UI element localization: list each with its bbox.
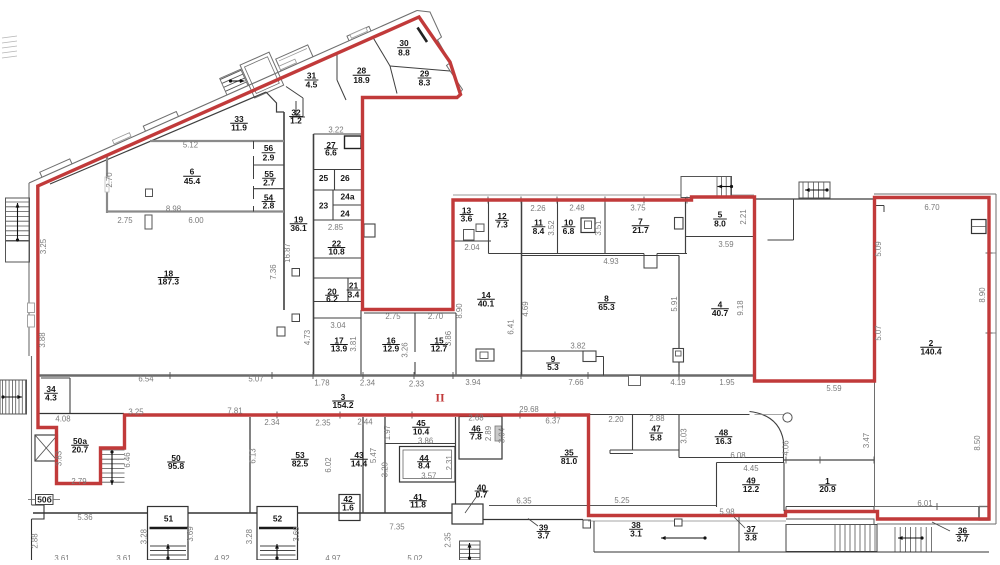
svg-text:8.8: 8.8: [398, 48, 410, 58]
svg-text:7.8: 7.8: [470, 432, 482, 442]
svg-text:52: 52: [273, 514, 283, 524]
svg-text:23: 23: [319, 201, 329, 211]
svg-text:6.35: 6.35: [516, 496, 532, 505]
svg-text:3.04: 3.04: [330, 321, 346, 330]
svg-text:5.25: 5.25: [614, 496, 630, 505]
svg-text:2.75: 2.75: [385, 312, 401, 321]
svg-text:7.66: 7.66: [568, 378, 583, 387]
svg-text:12.9: 12.9: [383, 344, 400, 354]
svg-text:2.48: 2.48: [569, 203, 584, 212]
svg-text:5.98: 5.98: [719, 507, 734, 516]
svg-text:3.6: 3.6: [461, 214, 473, 224]
svg-text:1.78: 1.78: [314, 378, 329, 387]
svg-text:8.98: 8.98: [166, 204, 181, 213]
svg-text:2.34: 2.34: [360, 378, 376, 387]
svg-text:7.81: 7.81: [227, 406, 242, 415]
svg-text:6.00: 6.00: [188, 216, 204, 225]
svg-text:11.8: 11.8: [410, 500, 426, 510]
svg-text:4.5: 4.5: [306, 80, 318, 90]
svg-text:3.28: 3.28: [139, 529, 148, 544]
svg-text:2.70: 2.70: [105, 172, 114, 188]
svg-text:6.70: 6.70: [924, 203, 940, 212]
svg-text:2.88: 2.88: [31, 533, 40, 548]
svg-text:65.3: 65.3: [598, 302, 615, 312]
svg-text:2.85: 2.85: [328, 223, 344, 232]
svg-text:14.4: 14.4: [351, 459, 368, 469]
svg-text:8.4: 8.4: [418, 461, 430, 471]
svg-text:6.02: 6.02: [324, 457, 333, 472]
svg-text:16.3: 16.3: [715, 436, 732, 446]
svg-text:29.68: 29.68: [519, 405, 539, 414]
svg-text:5.07: 5.07: [874, 325, 883, 340]
svg-text:3.86: 3.86: [444, 331, 453, 346]
svg-text:2.31: 2.31: [445, 455, 454, 470]
svg-text:6.37: 6.37: [545, 416, 560, 425]
svg-text:1.97: 1.97: [383, 425, 392, 440]
svg-text:26: 26: [340, 173, 350, 183]
svg-text:3.8: 3.8: [745, 533, 757, 543]
svg-text:4.08: 4.08: [55, 414, 70, 423]
svg-text:4.06: 4.06: [782, 440, 791, 455]
svg-text:3.69: 3.69: [186, 526, 195, 541]
svg-text:2.44: 2.44: [357, 417, 373, 426]
svg-text:5.3: 5.3: [547, 362, 559, 372]
svg-text:5.12: 5.12: [183, 140, 198, 149]
svg-text:3.4: 3.4: [348, 290, 360, 300]
svg-text:3.61: 3.61: [54, 554, 69, 560]
svg-text:12.2: 12.2: [743, 484, 760, 494]
svg-text:7.3: 7.3: [496, 220, 508, 230]
svg-text:2.70: 2.70: [428, 312, 444, 321]
svg-text:1.6: 1.6: [342, 503, 354, 513]
svg-text:28: 28: [357, 66, 367, 76]
svg-text:10.4: 10.4: [413, 427, 430, 437]
svg-text:5.02: 5.02: [407, 554, 422, 560]
svg-text:6: 6: [190, 167, 195, 177]
svg-text:4.45: 4.45: [743, 464, 759, 473]
svg-text:4.92: 4.92: [214, 554, 229, 560]
svg-text:5.09: 5.09: [874, 241, 883, 256]
svg-text:8.90: 8.90: [455, 303, 464, 319]
svg-text:18.9: 18.9: [353, 75, 370, 85]
svg-text:8.3: 8.3: [419, 78, 431, 88]
svg-text:11.9: 11.9: [231, 123, 247, 133]
svg-text:2.21: 2.21: [739, 209, 748, 224]
svg-text:2.26: 2.26: [530, 204, 545, 213]
svg-text:3.22: 3.22: [328, 125, 343, 134]
svg-text:2.04: 2.04: [464, 243, 480, 252]
svg-text:2.89: 2.89: [484, 426, 493, 441]
svg-text:51: 51: [164, 514, 174, 524]
svg-text:13.9: 13.9: [331, 344, 348, 354]
svg-text:40.7: 40.7: [712, 308, 729, 318]
svg-text:82.5: 82.5: [292, 459, 309, 469]
svg-text:3.04: 3.04: [498, 427, 507, 443]
svg-text:20.9: 20.9: [819, 484, 836, 494]
svg-text:50б: 50б: [37, 495, 52, 505]
svg-text:3.86: 3.86: [418, 437, 433, 446]
svg-text:6.01: 6.01: [917, 499, 932, 508]
svg-text:6.08: 6.08: [730, 451, 745, 460]
svg-text:45.4: 45.4: [184, 176, 201, 186]
svg-text:2.75: 2.75: [117, 216, 133, 225]
svg-text:1.95: 1.95: [719, 378, 735, 387]
svg-text:3.7: 3.7: [538, 531, 550, 541]
svg-text:9.18: 9.18: [736, 300, 745, 315]
svg-text:3.25: 3.25: [39, 238, 48, 254]
svg-text:6.46: 6.46: [123, 452, 132, 467]
svg-text:3.52: 3.52: [547, 220, 556, 235]
svg-text:3.28: 3.28: [245, 529, 254, 544]
svg-text:24: 24: [340, 209, 350, 219]
svg-text:4.69: 4.69: [521, 301, 530, 316]
svg-text:2.20: 2.20: [608, 415, 624, 424]
svg-text:4.3: 4.3: [45, 393, 57, 403]
svg-text:2.33: 2.33: [409, 379, 424, 388]
svg-text:5.59: 5.59: [826, 384, 841, 393]
svg-text:40.1: 40.1: [478, 299, 495, 309]
svg-text:6.8: 6.8: [563, 226, 575, 236]
svg-text:20.7: 20.7: [72, 445, 89, 455]
svg-text:6.2: 6.2: [326, 294, 338, 304]
svg-text:140.4: 140.4: [921, 347, 942, 357]
svg-text:7.36: 7.36: [269, 264, 278, 279]
svg-text:24a: 24a: [341, 192, 355, 202]
svg-text:16.87: 16.87: [283, 243, 292, 263]
svg-text:10.8: 10.8: [328, 247, 345, 257]
svg-text:4.73: 4.73: [303, 330, 312, 345]
svg-text:0.7: 0.7: [476, 490, 488, 500]
svg-text:3.69: 3.69: [292, 526, 301, 541]
svg-text:3.1: 3.1: [630, 529, 642, 539]
svg-text:3.59: 3.59: [718, 240, 733, 249]
svg-text:3.25: 3.25: [128, 407, 144, 416]
svg-text:3.81: 3.81: [349, 336, 358, 351]
svg-text:2.88: 2.88: [649, 414, 664, 423]
svg-text:21.7: 21.7: [632, 225, 649, 235]
svg-text:3.82: 3.82: [570, 341, 585, 350]
svg-text:5.91: 5.91: [670, 296, 679, 311]
svg-text:2.8: 2.8: [263, 201, 275, 211]
svg-text:4.19: 4.19: [670, 378, 685, 387]
svg-text:3.03: 3.03: [680, 428, 689, 443]
svg-text:1.2: 1.2: [290, 116, 302, 126]
svg-text:30: 30: [399, 38, 409, 48]
svg-text:6.13: 6.13: [249, 448, 258, 463]
svg-text:4.97: 4.97: [325, 554, 340, 560]
svg-text:3.47: 3.47: [862, 433, 871, 448]
svg-text:5.47: 5.47: [369, 448, 378, 463]
svg-text:2.34: 2.34: [264, 418, 280, 427]
svg-text:81.0: 81.0: [561, 456, 578, 466]
svg-text:154.2: 154.2: [333, 400, 354, 410]
svg-text:3.83: 3.83: [55, 451, 64, 466]
svg-text:2.35: 2.35: [444, 532, 453, 548]
svg-text:3.57: 3.57: [421, 471, 436, 480]
svg-text:4.93: 4.93: [603, 257, 618, 266]
svg-text:56: 56: [264, 143, 274, 153]
svg-text:3.94: 3.94: [465, 378, 481, 387]
svg-text:8.4: 8.4: [533, 226, 545, 236]
svg-text:6.41: 6.41: [507, 319, 516, 334]
svg-text:2.35: 2.35: [315, 418, 331, 427]
svg-text:6.54: 6.54: [138, 374, 154, 383]
svg-text:3.51: 3.51: [594, 220, 603, 235]
svg-text:8.0: 8.0: [714, 219, 726, 229]
svg-text:2.68: 2.68: [468, 413, 483, 422]
svg-text:36.1: 36.1: [290, 223, 307, 233]
svg-text:5.8: 5.8: [650, 433, 662, 443]
svg-text:2.7: 2.7: [263, 178, 275, 188]
svg-text:3.7: 3.7: [957, 534, 969, 544]
svg-text:8.90: 8.90: [978, 287, 987, 303]
svg-text:3.75: 3.75: [630, 203, 646, 212]
svg-text:3.29: 3.29: [381, 462, 390, 477]
svg-text:8.50: 8.50: [973, 435, 982, 451]
svg-text:3.88: 3.88: [38, 332, 47, 347]
svg-text:25: 25: [319, 173, 329, 183]
svg-text:95.8: 95.8: [168, 461, 185, 471]
svg-text:3.26: 3.26: [401, 342, 410, 357]
svg-text:3.61: 3.61: [116, 554, 131, 560]
svg-text:187.3: 187.3: [158, 277, 179, 287]
svg-text:6.6: 6.6: [325, 148, 337, 158]
svg-text:5.36: 5.36: [77, 513, 92, 522]
svg-text:2.79: 2.79: [71, 477, 86, 486]
svg-text:7.35: 7.35: [389, 522, 405, 531]
svg-text:II: II: [435, 391, 445, 405]
svg-text:2.9: 2.9: [263, 153, 275, 163]
svg-text:5.07: 5.07: [248, 374, 263, 383]
